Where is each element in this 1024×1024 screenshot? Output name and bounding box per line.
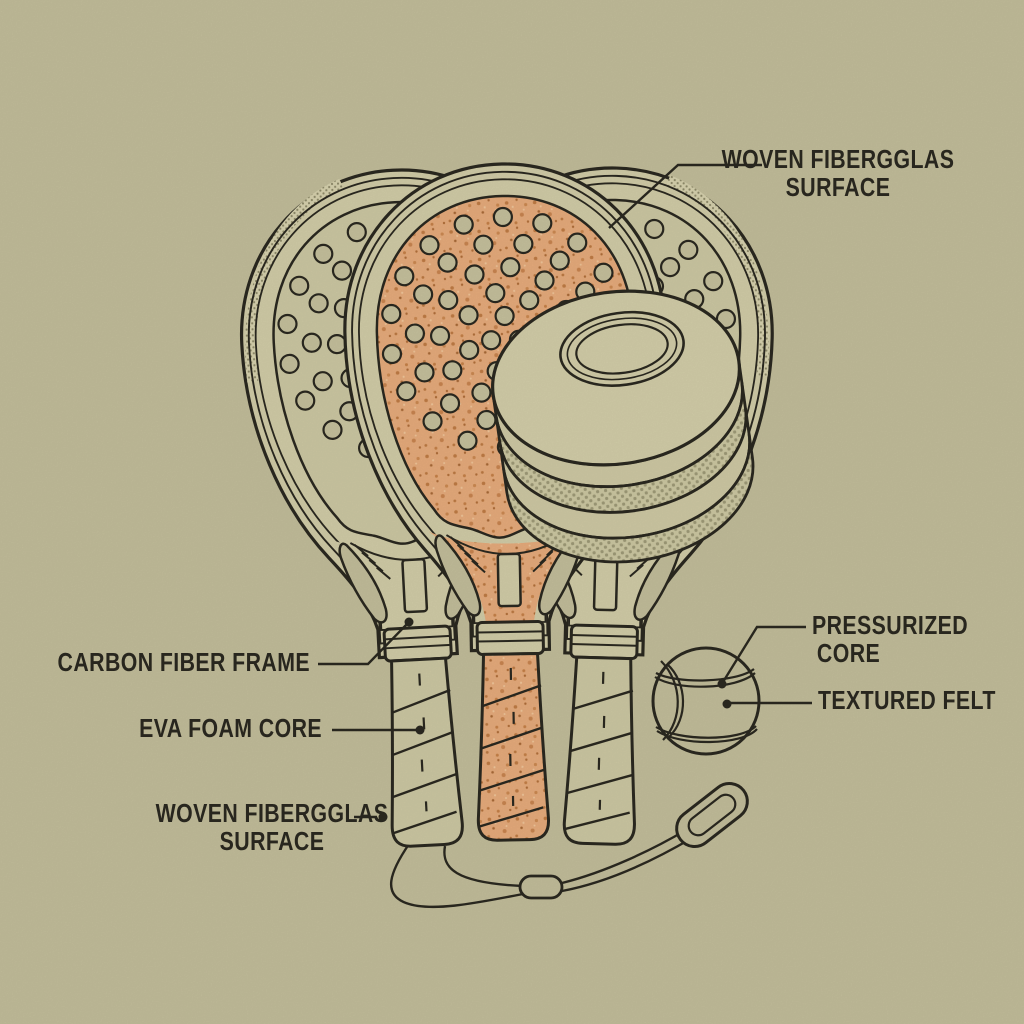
illustration-canvas: WOVEN FIBERGGLAS SURFACE CARBON FIBER FR… [0,0,1024,1024]
padel-diagram-illustration: WOVEN FIBERGGLAS SURFACE CARBON FIBER FR… [0,0,1024,1024]
paper-grain-overlay [0,0,1024,1024]
